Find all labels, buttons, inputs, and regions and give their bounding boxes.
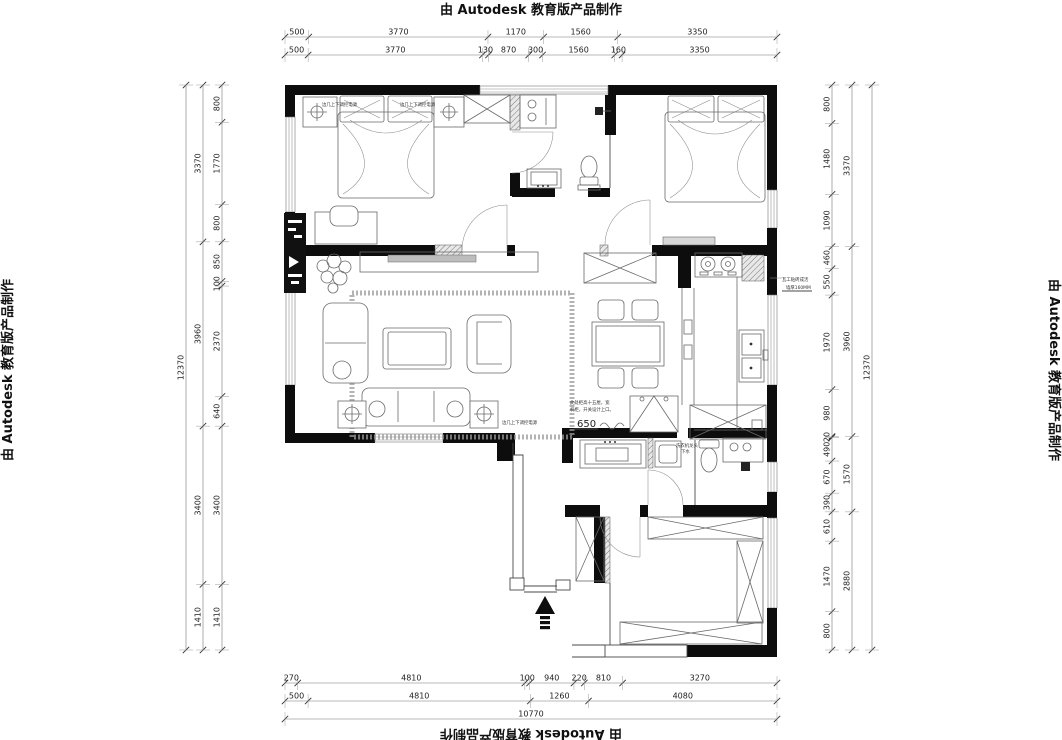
toilet-1 [578, 156, 600, 190]
nightstand-note-left: 边几上下调控电源 [322, 101, 358, 108]
window-right-kitchen [768, 295, 777, 385]
nightstand-note-right: 边几上下调控电源 [400, 101, 436, 108]
dim-label: 3370 [194, 153, 203, 173]
dim-label: 1560 [570, 28, 590, 37]
kitchen-sink [739, 330, 768, 382]
dim-label: 1170 [506, 28, 526, 37]
living-room: 边几上下调控电源 [317, 252, 572, 437]
dim-label: 270 [284, 674, 299, 683]
bathroom1 [520, 95, 611, 190]
watermark-text: 由 Autodesk 教育版产品制作 [0, 279, 16, 461]
dim-label: 10770 [518, 710, 543, 719]
wardrobe-bedroom1 [464, 95, 510, 123]
desk-and-chair [315, 206, 377, 244]
cabinet-note-line2: 机柜，开关设计上口。 [570, 406, 614, 413]
cabinet-dining [584, 253, 656, 283]
dim-label: 1770 [213, 153, 222, 173]
armchair-right [467, 315, 511, 373]
cad-floor-plan-page: 由 Autodesk 教育版产品制作 由 Autodesk 教育版产品制作 由 … [0, 0, 1062, 740]
dim-label: 2880 [843, 571, 852, 591]
watermark-left: 由 Autodesk 教育版产品制作 [0, 279, 16, 461]
dim-label: 100 [520, 674, 535, 683]
bathroom2: 洗衣机龙头 下水 [580, 438, 763, 472]
wardrobe-east [737, 541, 763, 623]
dim-label: 3400 [194, 495, 203, 515]
floor-plan-canvas: 由 Autodesk 教育版产品制作 由 Autodesk 教育版产品制作 由 … [0, 0, 1062, 740]
watermark-top: 由 Autodesk 教育版产品制作 [440, 2, 622, 18]
dim-label: 1260 [549, 692, 569, 701]
washbasin-cabinet [520, 95, 556, 128]
dim-label: 1560 [568, 46, 588, 55]
dim-label: 130 [478, 46, 493, 55]
dim-label: 300 [528, 46, 543, 55]
dim-label: 870 [501, 46, 516, 55]
vanity-2 [580, 440, 646, 468]
low-cabinet [663, 237, 715, 245]
toilet-2 [699, 440, 719, 472]
watermark-right: 由 Autodesk 教育版产品制作 [1046, 279, 1062, 461]
window-left-bedroom1 [286, 117, 295, 212]
dim-label: 500 [289, 28, 304, 37]
dim-label: 670 [823, 469, 832, 484]
floor-drain-icon [595, 107, 603, 115]
dim-label: 850 [213, 254, 222, 269]
side-table-right [470, 401, 498, 428]
sofa-left [323, 303, 368, 383]
dim-label: 3270 [690, 674, 710, 683]
washer-note-line2: 下水 [681, 448, 690, 455]
bedroom2 [663, 96, 765, 245]
dim-label: 3770 [385, 46, 405, 55]
dim-label: 3960 [194, 324, 203, 344]
dim-label: 610 [823, 519, 832, 534]
dim-label: 20 [823, 432, 832, 442]
dim-label: 1480 [823, 149, 832, 169]
fridge-double-door [630, 396, 678, 432]
window-right-bath2 [768, 462, 777, 492]
watermark-text: 由 Autodesk 教育版产品制作 [440, 726, 622, 740]
dim-label: 1410 [213, 607, 222, 627]
dim-label: 810 [596, 674, 611, 683]
door-bedroom2 [605, 200, 650, 245]
window-living-south [375, 434, 443, 442]
dim-label: 390 [823, 495, 832, 510]
cabinet-note-line1: 此处柜高十五厘，宽 [570, 399, 610, 406]
dim-label: 1090 [823, 210, 832, 230]
dim-label: 800 [213, 96, 222, 111]
dim-label: 1570 [843, 464, 852, 484]
bedroom3 [576, 517, 763, 645]
dim-label: 100 [213, 276, 222, 291]
watermark-text: 由 Autodesk 教育版产品制作 [440, 2, 622, 18]
plant-icon [317, 254, 351, 293]
window-top-bathroom [480, 86, 608, 94]
window-left-living [286, 290, 295, 385]
dim-label: 550 [823, 274, 832, 289]
dim-label: 800 [823, 623, 832, 638]
watermark-logo [284, 213, 306, 293]
dim-label: 3350 [689, 46, 709, 55]
dim-label: 1970 [823, 332, 832, 352]
dim-label: 500 [289, 46, 304, 55]
door-bathroom1 [512, 132, 553, 173]
corridor-walls [510, 443, 570, 592]
dim-label: 490 [823, 442, 832, 457]
dim-label: 1410 [194, 607, 203, 627]
nightstand-left [303, 97, 337, 127]
window-right-bedroom3 [768, 518, 777, 608]
dim-label: 640 [213, 404, 222, 419]
watermark-text: 由 Autodesk 教育版产品制作 [1046, 279, 1062, 461]
window-right-bedroom2 [768, 190, 777, 228]
dining-table-set [592, 300, 664, 388]
dim-label: 3400 [213, 495, 222, 515]
dim-label: 4810 [401, 674, 421, 683]
dim-label: 3350 [687, 28, 707, 37]
dim-label: 3370 [843, 156, 852, 176]
dining-room: 此处柜高十五厘，宽 机柜，开关设计上口。 650 [570, 253, 678, 432]
wardrobe-south [620, 622, 762, 644]
dim-label: 4080 [673, 692, 693, 701]
washer-note-line1: 洗衣机龙头 [676, 442, 699, 449]
tile-note-line2: 墙厚160MM [786, 284, 811, 291]
wardrobe-north [648, 517, 763, 539]
sofa-three-seat [362, 388, 470, 426]
dim-label: 800 [212, 216, 221, 231]
vanity-1 [527, 169, 561, 188]
door-bedroom1 [462, 205, 507, 250]
dim-label: 1470 [823, 566, 832, 586]
dim-label: 220 [572, 674, 587, 683]
dim-label: 980 [823, 405, 832, 420]
side-table-note: 边几上下调控电源 [502, 419, 538, 426]
gas-stove [695, 253, 742, 277]
washing-machine [723, 438, 763, 471]
dim-label: 4810 [409, 692, 429, 701]
entrance-arrow-icon [535, 596, 555, 629]
dim-label: 160 [611, 46, 626, 55]
tile-note-line1: 瓦工贴砖成活 [782, 276, 809, 283]
side-table-left [338, 401, 366, 428]
coffee-table [383, 328, 451, 369]
dim-label: 800 [823, 97, 832, 112]
dim-label: 12370 [863, 355, 872, 380]
bed-double-1 [338, 96, 434, 198]
dim-label: 12370 [177, 355, 186, 380]
dim-label: 500 [289, 692, 304, 701]
watermark-bottom: 由 Autodesk 教育版产品制作 [440, 726, 622, 740]
door-bathroom2 [648, 470, 683, 505]
nightstand-right [434, 97, 464, 127]
cabinet-dim-650: 650 [577, 419, 596, 430]
dim-label: 3960 [843, 331, 852, 351]
dim-label: 2370 [213, 331, 222, 351]
bed-double-2 [665, 96, 765, 202]
dim-label: 3770 [388, 28, 408, 37]
dim-label: 940 [544, 674, 559, 683]
dim-label: 460 [823, 250, 832, 265]
bedroom1: 边几上下调控电源 边几上下调控电源 [303, 95, 510, 244]
